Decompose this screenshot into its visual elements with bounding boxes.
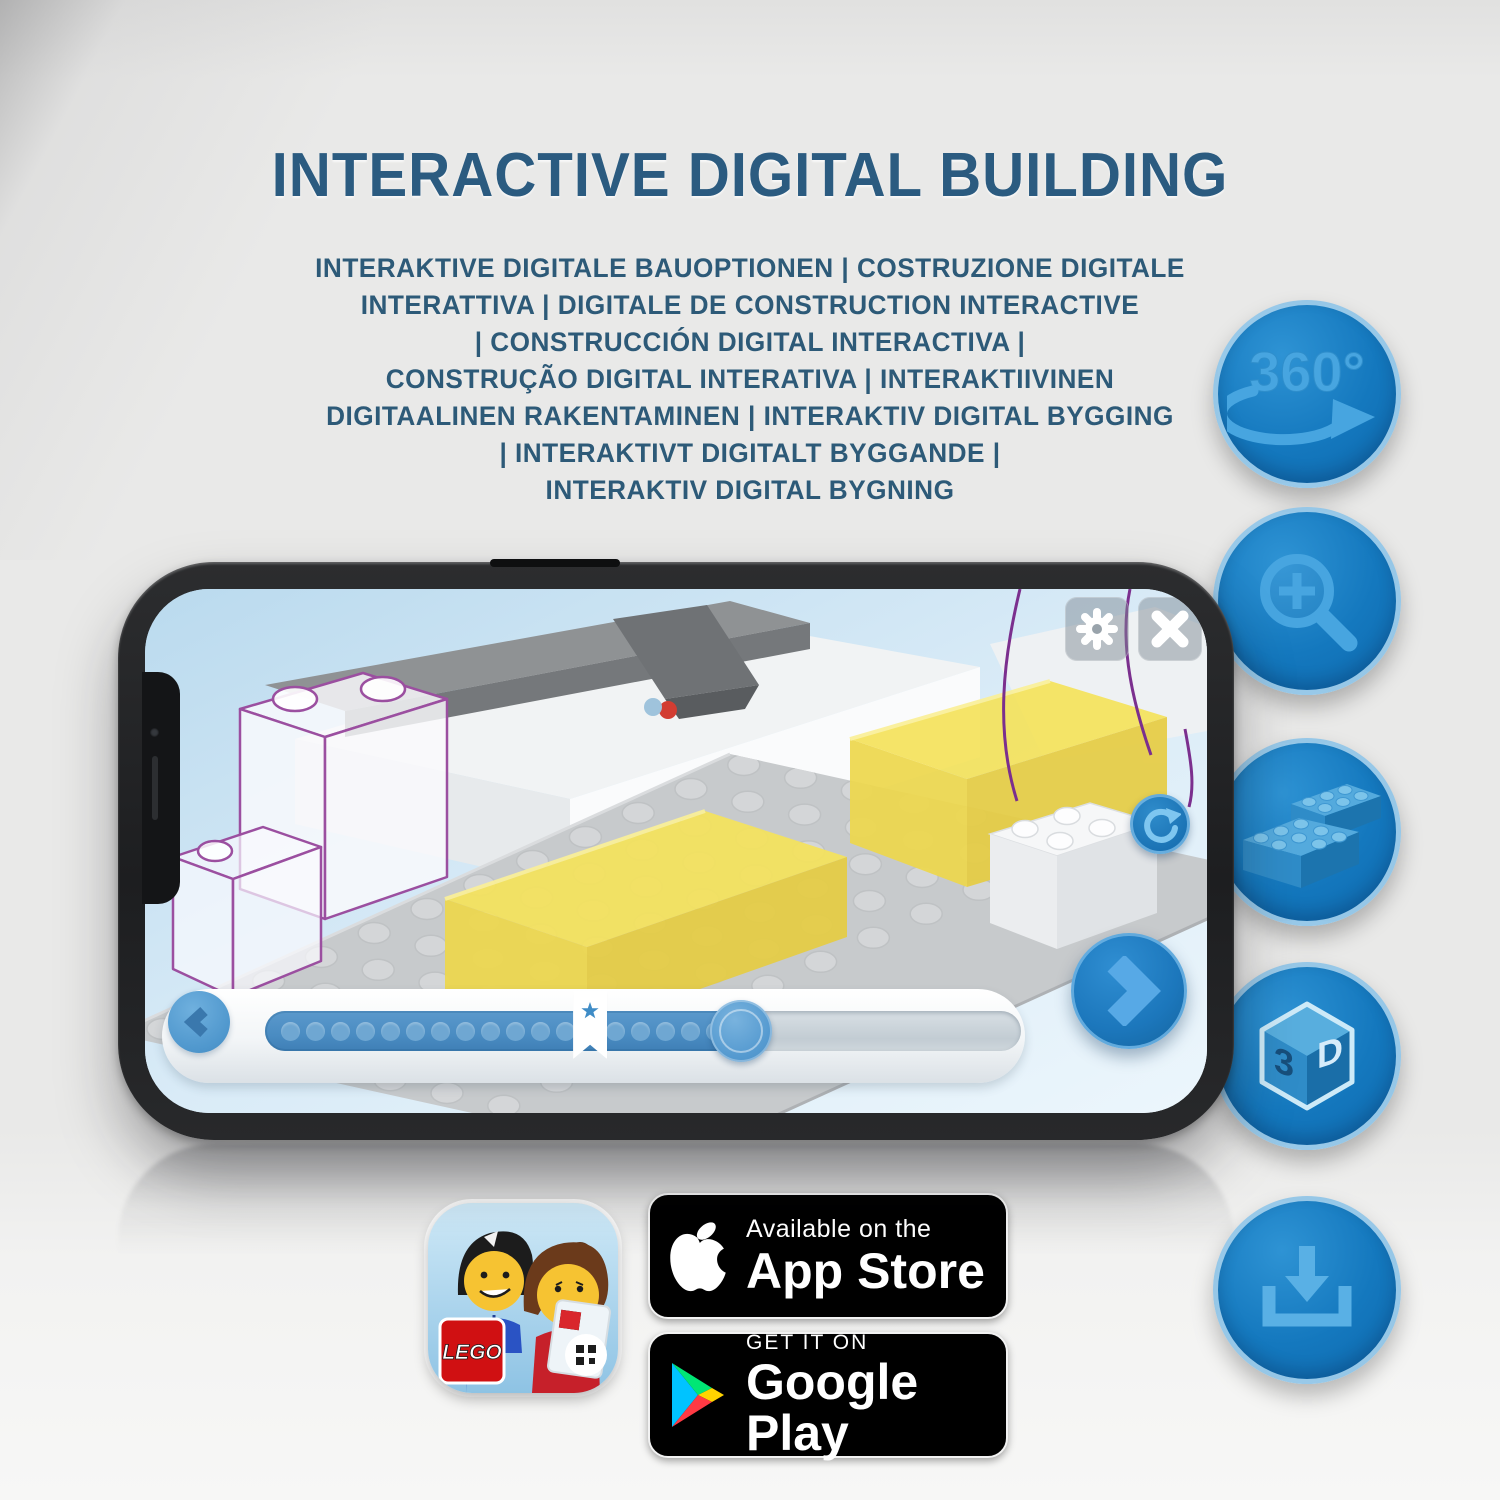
earpiece-speaker [152, 756, 158, 820]
star-icon [580, 1001, 600, 1021]
app-store-label: App Store [746, 1246, 985, 1297]
app-store-tagline: Available on the [746, 1215, 985, 1244]
google-play-tagline: GET IT ON [746, 1331, 1006, 1355]
zoom-in-icon [1247, 541, 1367, 661]
360-rotation-icon: 360° [1227, 329, 1387, 459]
phone-notch [142, 672, 180, 904]
page-title: INTERACTIVE DIGITAL BUILDING [45, 140, 1455, 211]
lego-bricks-icon [1232, 762, 1382, 902]
feature-bricks-badge [1213, 738, 1401, 926]
chevron-left-icon [182, 1005, 216, 1039]
subtitle-line: DIGITAALINEN RAKENTAMINEN | INTERAKTIV D… [236, 398, 1264, 435]
multilingual-subtitle: INTERAKTIVE DIGITALE BAUOPTIONEN | COSTR… [236, 250, 1264, 509]
next-step-button[interactable] [1071, 933, 1187, 1049]
cube-face-3: 3 [1274, 1039, 1294, 1085]
lego-logo-text: LEGO [442, 1341, 502, 1364]
settings-button[interactable] [1065, 597, 1129, 661]
phone-screen [145, 589, 1207, 1113]
subtitle-line: | CONSTRUCCIÓN DIGITAL INTERACTIVA | [236, 324, 1264, 361]
rotate-arrow-icon [1139, 803, 1181, 845]
subtitle-line: | INTERAKTIVT DIGITALT BYGGANDE | [236, 435, 1264, 472]
gear-icon [1073, 605, 1121, 653]
google-play-label: Google Play [746, 1357, 1006, 1459]
rotate-view-button[interactable] [1130, 794, 1190, 854]
lego-app-icon[interactable]: LEGO [428, 1203, 618, 1393]
progress-slider-track[interactable] [265, 1011, 1021, 1051]
close-icon [1148, 607, 1192, 651]
subtitle-line: INTERAKTIVE DIGITALE BAUOPTIONEN | COSTR… [236, 250, 1264, 287]
subtitle-line: INTERATTIVA | DIGITALE DE CONSTRUCTION I… [236, 287, 1264, 324]
subtitle-line: CONSTRUÇÃO DIGITAL INTERATIVA | INTERAKT… [236, 361, 1264, 398]
feature-3d-view-badge: 3 D [1213, 962, 1401, 1150]
chevron-right-icon [1094, 956, 1164, 1026]
download-icon [1247, 1230, 1367, 1350]
phone-mockup [118, 562, 1234, 1140]
3d-cube-icon: 3 D [1242, 991, 1372, 1121]
progress-handle[interactable] [710, 1000, 772, 1062]
360-label: 360° [1249, 340, 1365, 403]
previous-step-button[interactable] [168, 991, 230, 1053]
google-play-icon [650, 1362, 746, 1428]
feature-360-rotation-badge: 360° [1213, 300, 1401, 488]
lego-logo: LEGO [440, 1319, 504, 1383]
app-store-badge[interactable]: Available on the App Store [648, 1193, 1008, 1319]
google-play-badge[interactable]: GET IT ON Google Play [648, 1332, 1008, 1458]
phone-side-button [490, 559, 620, 567]
subtitle-line: INTERAKTIV DIGITAL BYGNING [236, 472, 1264, 509]
feature-download-badge [1213, 1196, 1401, 1384]
apple-logo-icon [650, 1219, 746, 1293]
cube-face-d: D [1317, 1028, 1343, 1076]
build-step-bar [162, 989, 1025, 1083]
front-camera [150, 728, 159, 737]
feature-zoom-badge [1213, 507, 1401, 695]
lego-app-icon-art: LEGO [428, 1203, 618, 1393]
close-button[interactable] [1138, 597, 1202, 661]
progress-fill [265, 1011, 741, 1051]
lower-brick [1243, 818, 1359, 888]
